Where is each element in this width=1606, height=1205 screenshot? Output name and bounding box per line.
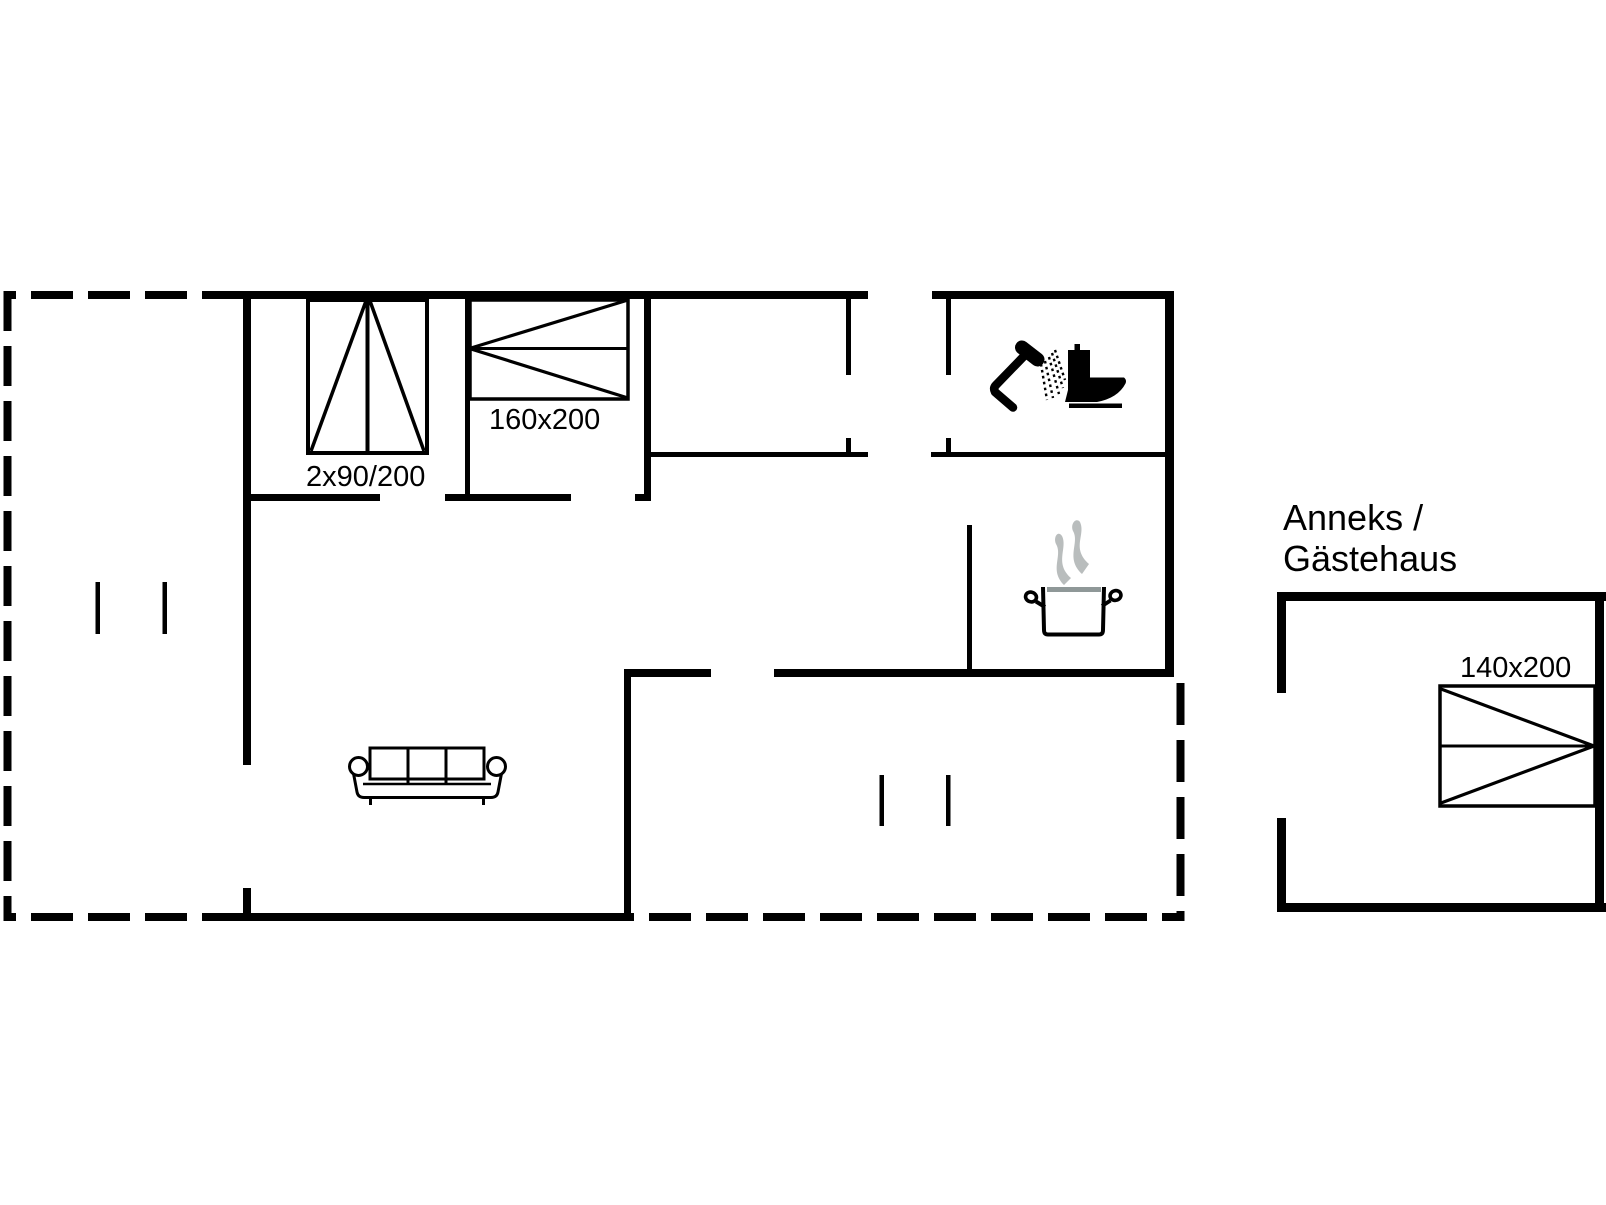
svg-text:Anneks /: Anneks / xyxy=(1283,497,1423,538)
svg-text:2x90/200: 2x90/200 xyxy=(306,461,425,493)
svg-text:160x200: 160x200 xyxy=(489,404,600,436)
svg-text:Gästehaus: Gästehaus xyxy=(1283,538,1457,579)
svg-text:140x200: 140x200 xyxy=(1460,652,1571,684)
